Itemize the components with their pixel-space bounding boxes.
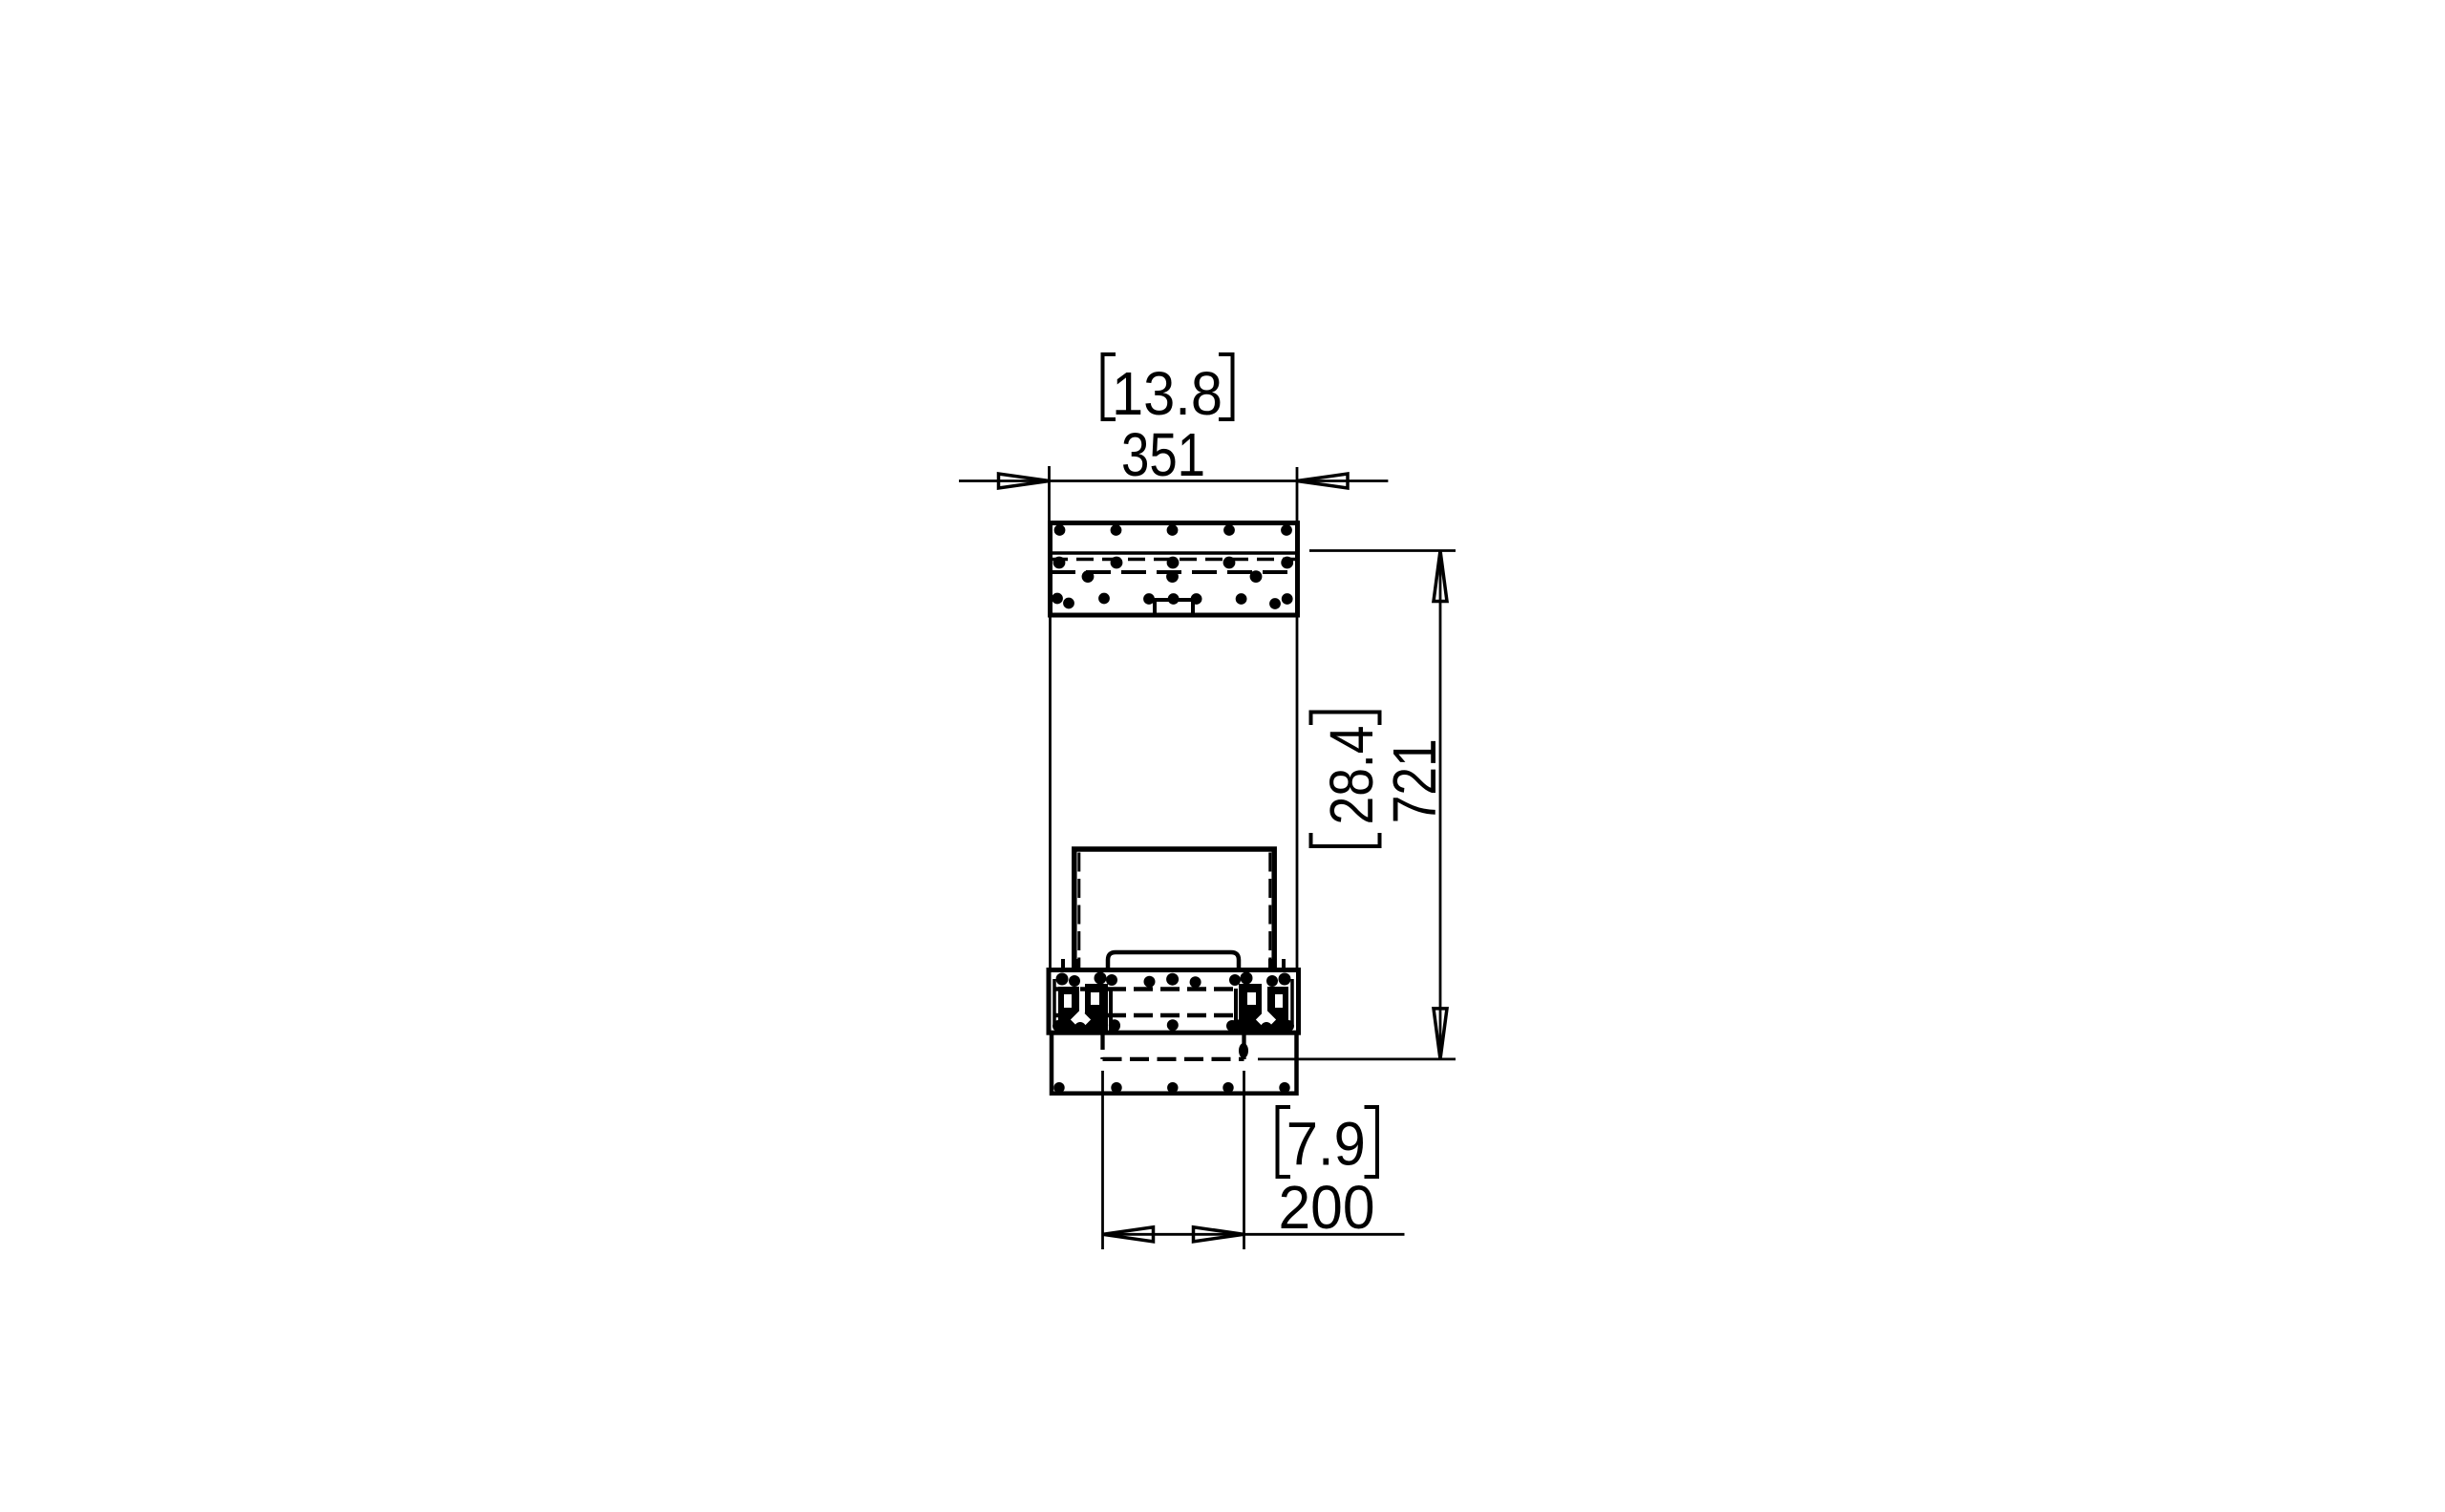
svg-text:200: 200 bbox=[1279, 1173, 1375, 1242]
svg-text:351: 351 bbox=[1121, 420, 1205, 489]
svg-text:7.9: 7.9 bbox=[1286, 1110, 1366, 1179]
svg-text:28.4: 28.4 bbox=[1317, 726, 1386, 825]
svg-text:721: 721 bbox=[1380, 738, 1449, 823]
svg-text:13.8: 13.8 bbox=[1112, 359, 1222, 428]
